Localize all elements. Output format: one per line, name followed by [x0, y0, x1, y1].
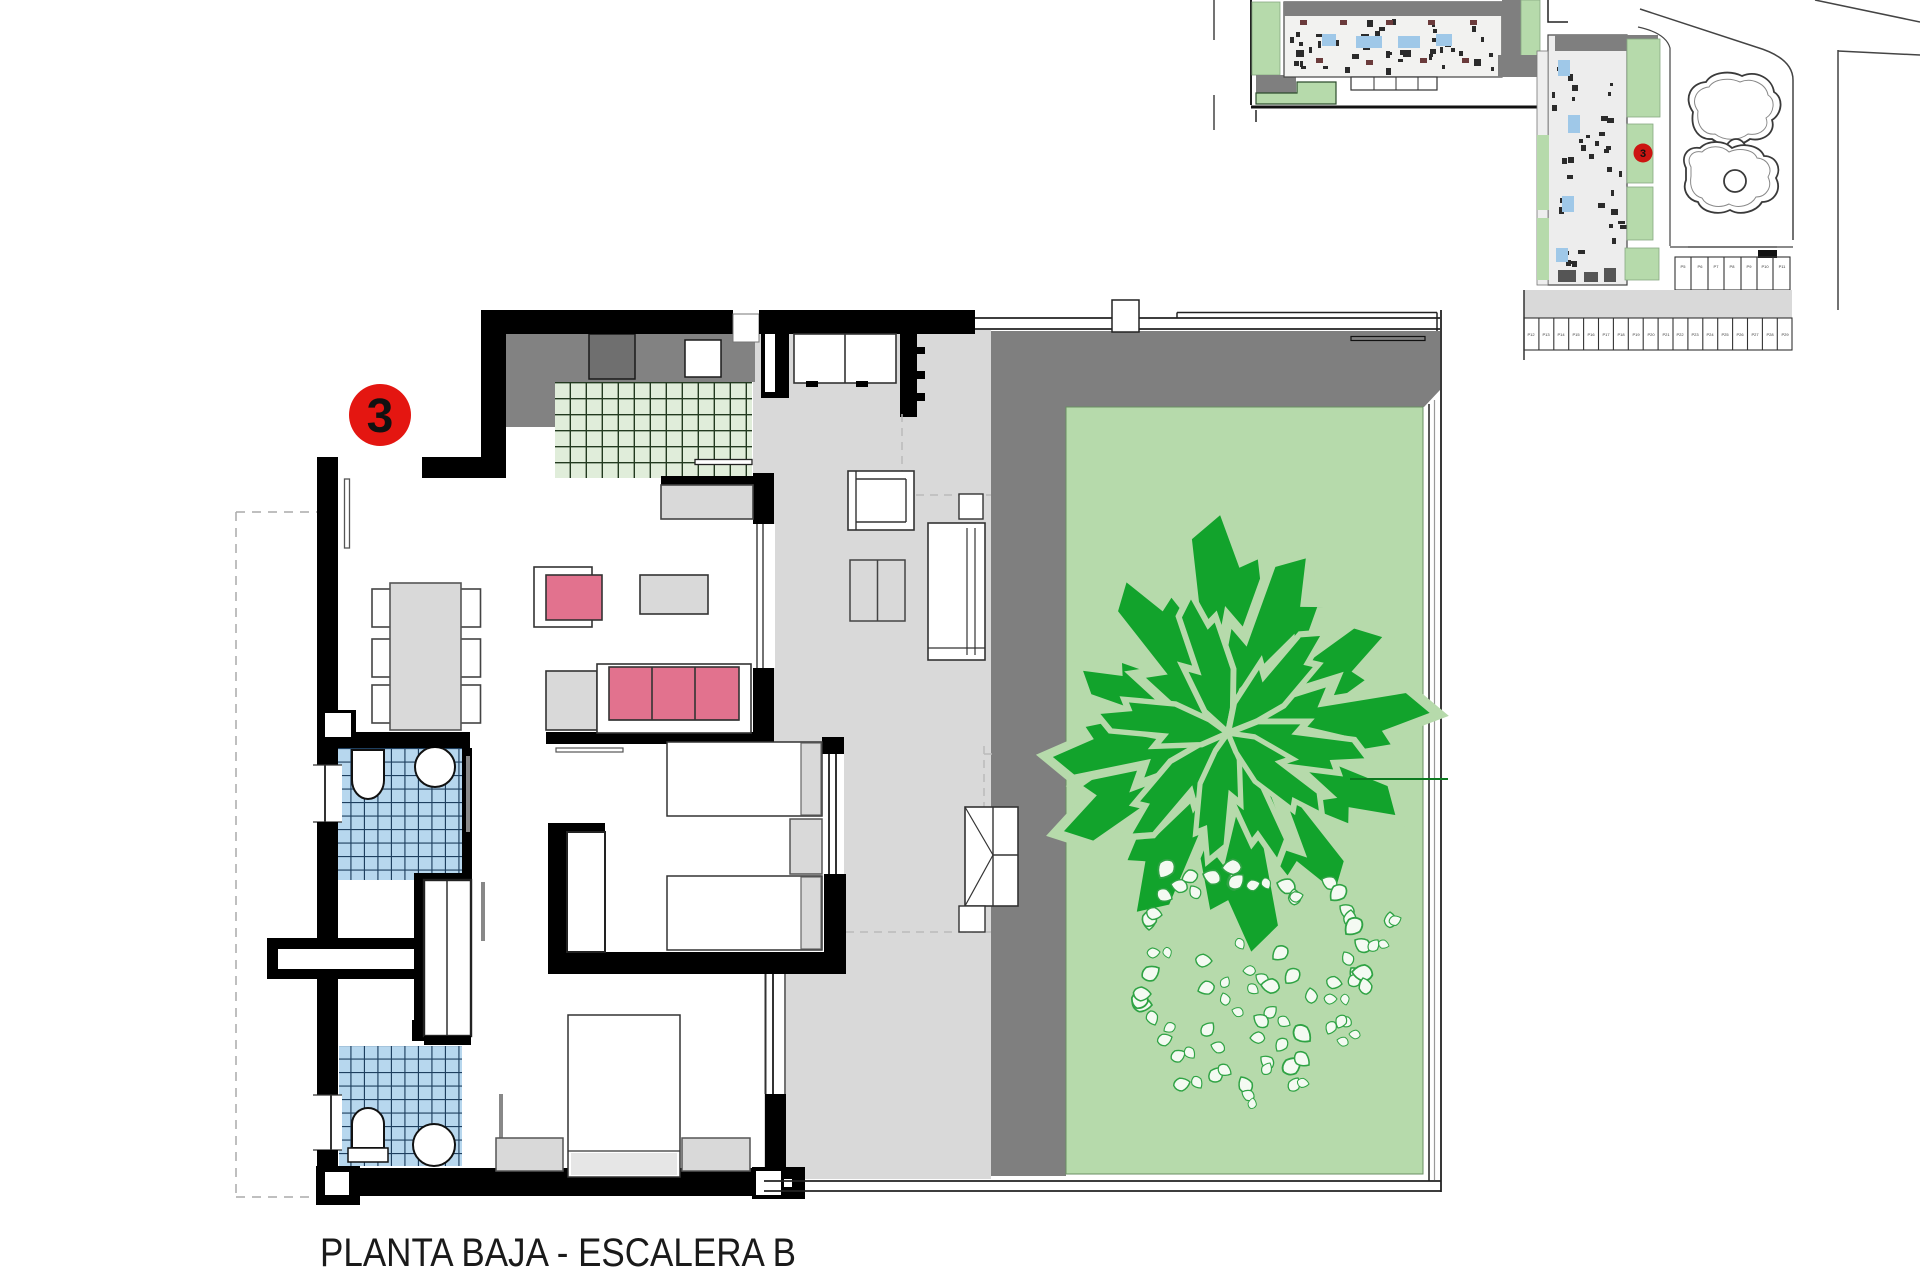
svg-text:P10: P10: [1761, 264, 1769, 269]
svg-text:3: 3: [367, 390, 394, 443]
svg-text:P25: P25: [1721, 332, 1729, 337]
svg-text:P21: P21: [1662, 332, 1670, 337]
svg-text:3: 3: [1640, 148, 1646, 160]
svg-text:P29: P29: [1781, 332, 1789, 337]
svg-text:P27: P27: [1751, 332, 1759, 337]
svg-text:P9: P9: [1747, 264, 1753, 269]
svg-text:P22: P22: [1676, 332, 1684, 337]
svg-text:P19: P19: [1632, 332, 1640, 337]
svg-text:PLANTA BAJA - ESCALERA B: PLANTA BAJA - ESCALERA B: [320, 1231, 796, 1275]
svg-text:P7: P7: [1714, 264, 1720, 269]
svg-text:P15: P15: [1572, 332, 1580, 337]
svg-text:P24: P24: [1706, 332, 1714, 337]
svg-text:P28: P28: [1766, 332, 1774, 337]
svg-text:P6: P6: [1698, 264, 1704, 269]
svg-text:P17: P17: [1602, 332, 1610, 337]
svg-text:P20: P20: [1647, 332, 1655, 337]
svg-text:P18: P18: [1617, 332, 1625, 337]
svg-text:P8: P8: [1730, 264, 1736, 269]
svg-text:P14: P14: [1557, 332, 1565, 337]
svg-text:P26: P26: [1736, 332, 1744, 337]
svg-text:P12: P12: [1527, 332, 1535, 337]
svg-text:P11: P11: [1779, 264, 1787, 269]
svg-text:P13: P13: [1542, 332, 1550, 337]
svg-text:P5: P5: [1681, 264, 1687, 269]
svg-text:P16: P16: [1587, 332, 1595, 337]
svg-text:P23: P23: [1691, 332, 1699, 337]
